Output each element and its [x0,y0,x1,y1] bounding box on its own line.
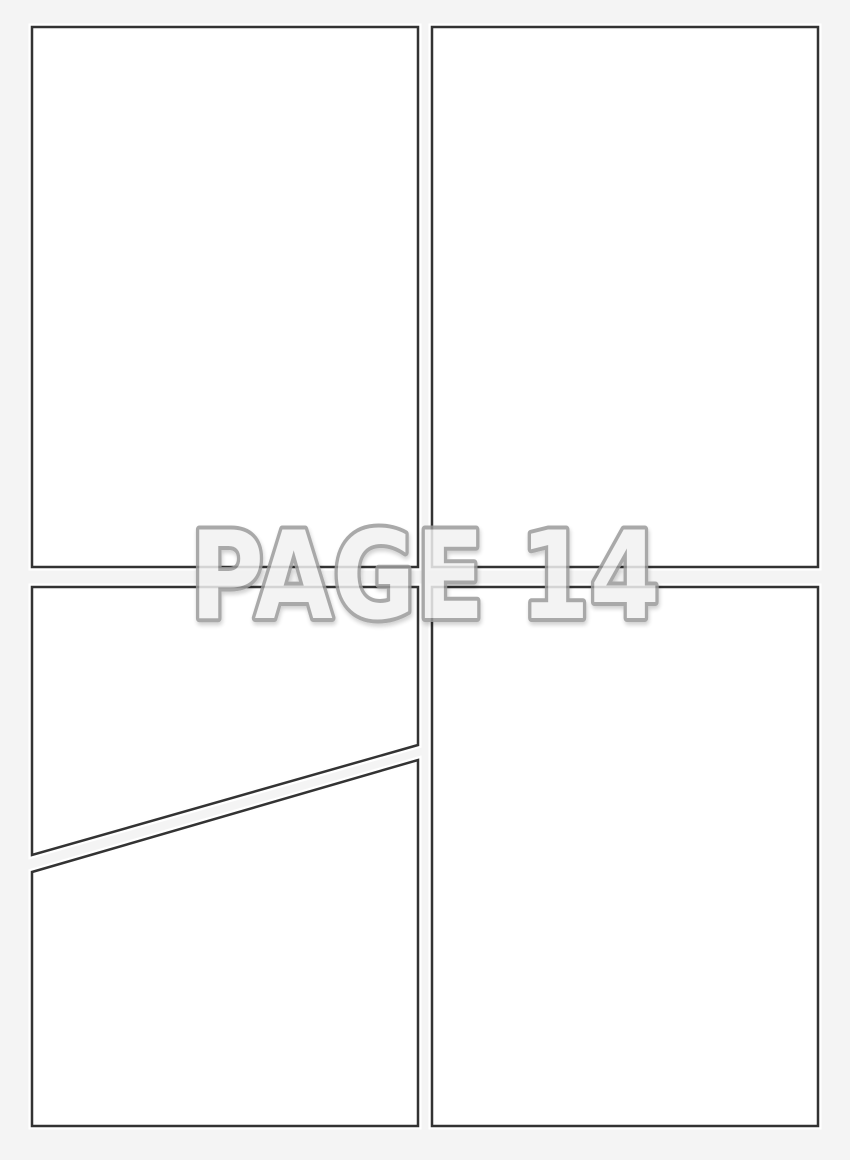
panel-bottom-right [432,587,818,1126]
panel-top-right [432,27,818,567]
page-canvas: PAGE 14 [0,0,850,1160]
page-number-label: PAGE 14 [190,506,660,647]
panel-top-left [32,27,418,567]
page-number-watermark: PAGE 14 [190,506,660,647]
comic-page-template: PAGE 14 [0,0,850,1160]
